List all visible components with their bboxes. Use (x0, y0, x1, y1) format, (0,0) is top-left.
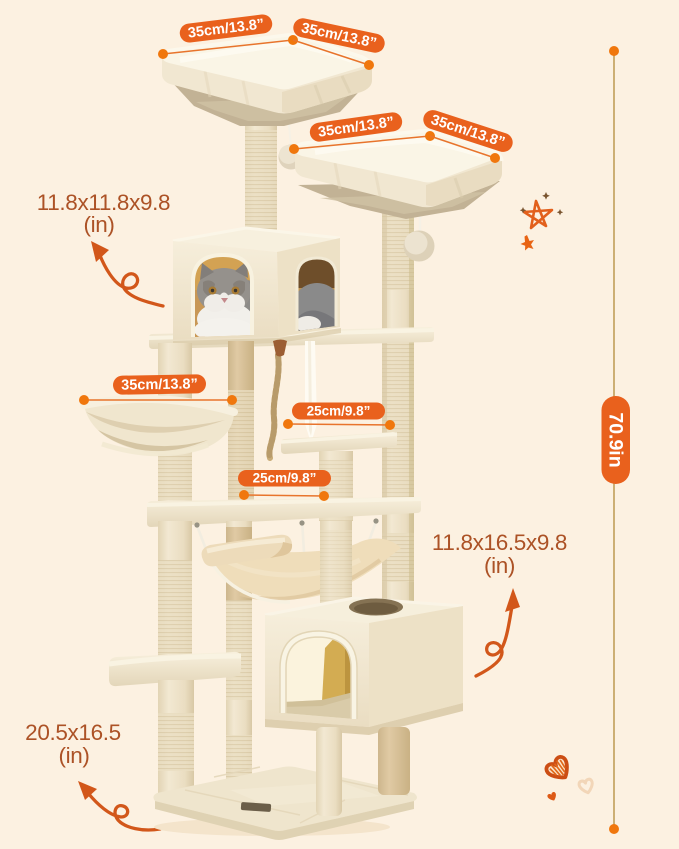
svg-text:(in): (in) (58, 743, 89, 768)
svg-text:11.8x16.5x9.8: 11.8x16.5x9.8 (432, 530, 567, 555)
svg-text:20.5x16.5: 20.5x16.5 (25, 720, 121, 745)
svg-text:(in): (in) (83, 212, 114, 237)
svg-text:70.9in: 70.9in (605, 412, 627, 467)
svg-text:(in): (in) (484, 553, 515, 578)
svg-text:25cm/9.8”: 25cm/9.8” (307, 404, 371, 419)
svg-text:25cm/9.8”: 25cm/9.8” (253, 471, 317, 486)
svg-text:35cm/13.8”: 35cm/13.8” (121, 376, 198, 393)
